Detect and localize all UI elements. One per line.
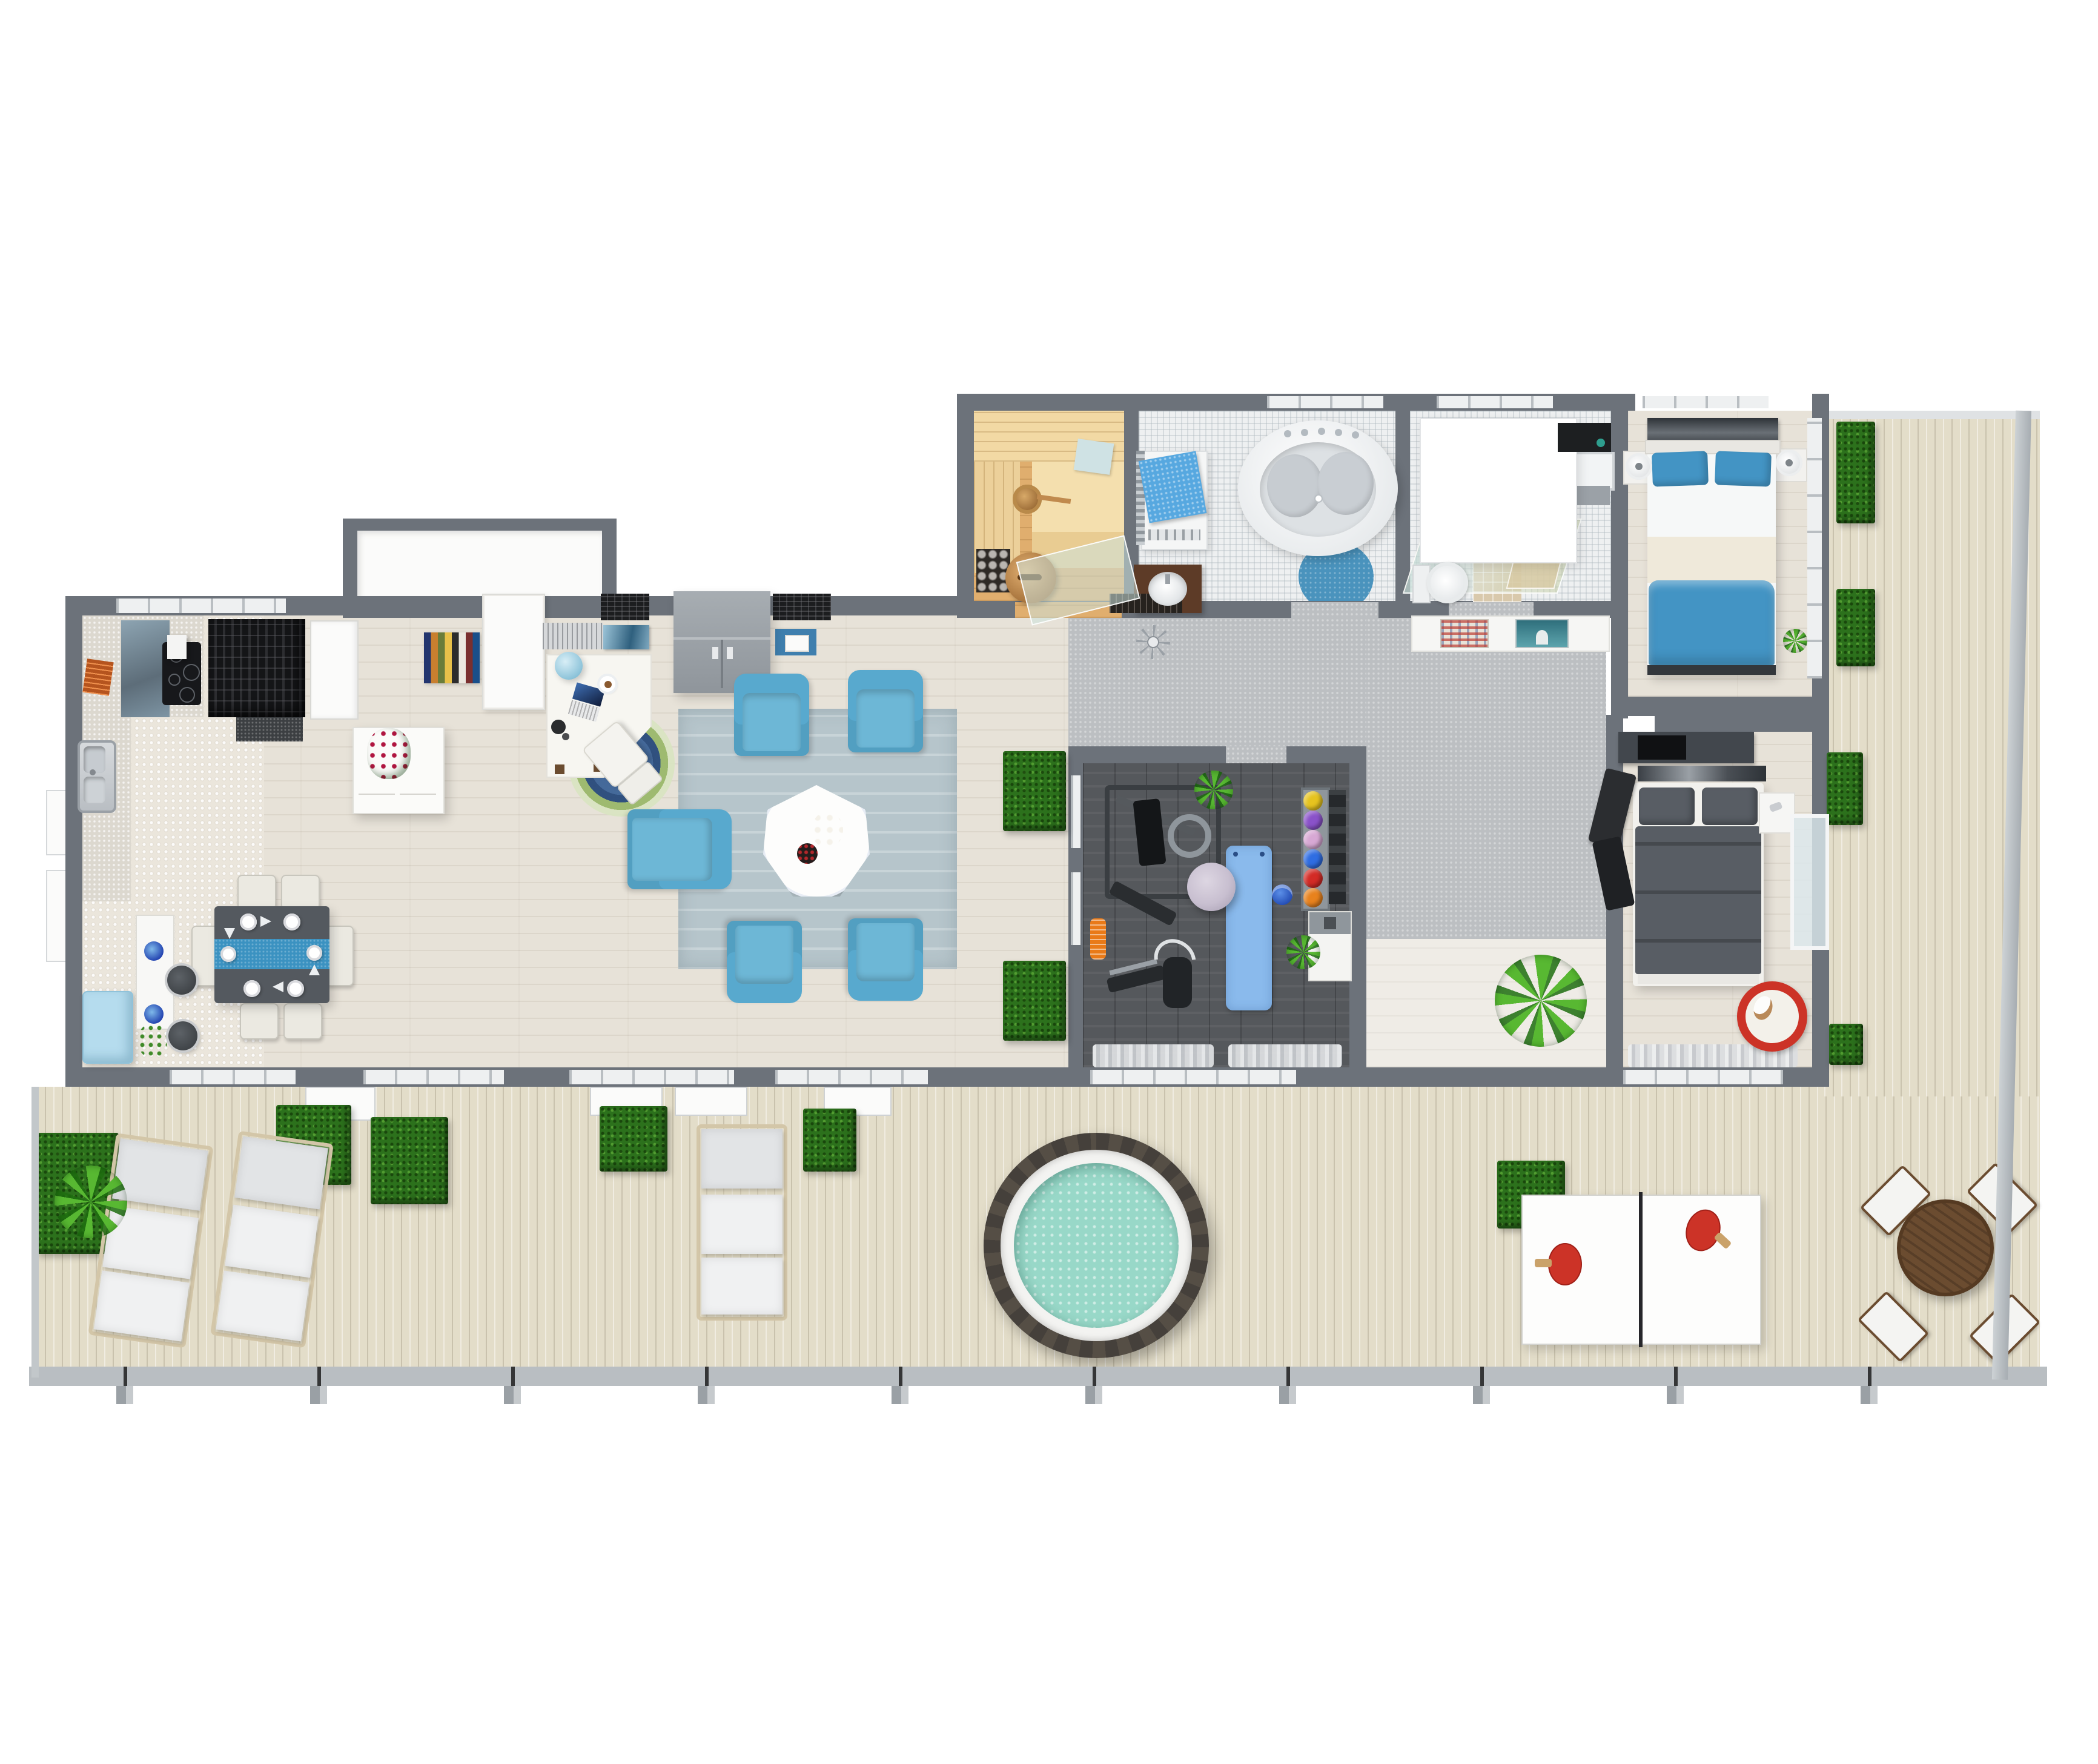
dog-bed xyxy=(1737,981,1807,1052)
hedge-cube xyxy=(803,1109,856,1172)
south-window xyxy=(170,1070,296,1084)
kitchen-sink xyxy=(78,740,116,813)
ping-pong-table xyxy=(1521,1195,1761,1345)
retro-fridge xyxy=(82,991,133,1064)
fern-plant xyxy=(55,1165,127,1238)
living-gym-window xyxy=(1071,872,1080,945)
medicine-ball xyxy=(1303,888,1323,907)
terrace-round-table xyxy=(1897,1199,1994,1296)
balcony-top-edge xyxy=(1824,411,2040,419)
armchair xyxy=(848,670,923,752)
armchair xyxy=(627,809,732,889)
hedge-cube xyxy=(1827,752,1863,825)
orchid-centerpiece xyxy=(812,812,843,848)
napkin xyxy=(224,928,235,939)
hedge-cube xyxy=(1829,1024,1863,1065)
blanket-cream xyxy=(1647,537,1776,583)
hot-tub xyxy=(984,1133,1209,1358)
gym-north-wall xyxy=(1078,746,1364,763)
integrated-fridge-door xyxy=(310,620,359,720)
bedside-lamp xyxy=(1626,453,1652,480)
brick-wall-panel xyxy=(601,594,649,620)
sauna-towel xyxy=(1074,439,1114,475)
dining-chair xyxy=(281,875,320,910)
lounge-chair-dark xyxy=(1594,771,1633,911)
flower-vase xyxy=(138,1024,167,1058)
pillow xyxy=(1702,787,1758,825)
armchair xyxy=(848,918,923,1001)
ping-pong-paddle xyxy=(1549,1244,1581,1284)
dining-table xyxy=(214,906,329,1003)
closet-bump-interior xyxy=(357,531,602,598)
blue-bowl xyxy=(144,941,164,961)
island-plant xyxy=(367,728,411,779)
art-print-tree xyxy=(1441,620,1487,647)
exercise-ball xyxy=(1187,863,1236,911)
hedge-cube xyxy=(371,1117,448,1204)
sun-lounger xyxy=(697,1124,787,1321)
skylight-panel xyxy=(1420,418,1577,563)
aquarium-picture xyxy=(603,625,649,649)
railing-posts xyxy=(29,1386,2047,1404)
ping-pong-net-line xyxy=(1639,1192,1643,1347)
round-tray xyxy=(797,843,818,864)
open-door-leaf xyxy=(675,1087,747,1116)
dining-chair xyxy=(237,875,276,910)
plate xyxy=(283,913,300,930)
tub-headrest xyxy=(1318,452,1374,515)
south-window xyxy=(1623,1070,1783,1084)
hallway-carpet-leg xyxy=(1366,618,1606,939)
brick-wall-panel xyxy=(773,594,831,620)
bedroom2-north-wall xyxy=(1655,715,1829,732)
medicine-ball xyxy=(1303,869,1323,888)
armchair xyxy=(727,921,802,1003)
south-wall xyxy=(65,1067,1829,1087)
pillow xyxy=(1715,451,1772,486)
plate xyxy=(287,980,304,997)
vessel-sink xyxy=(1148,572,1187,606)
north-window xyxy=(116,598,286,613)
blue-towel xyxy=(1139,451,1207,523)
hedge-cube xyxy=(1003,961,1066,1041)
hallway-carpet xyxy=(1068,618,1412,746)
bedroom2-artwork xyxy=(1638,766,1766,781)
bar-stool xyxy=(168,1021,197,1050)
utensil-mat xyxy=(82,658,113,696)
hedge-cube xyxy=(600,1106,667,1172)
south-window xyxy=(1090,1070,1296,1084)
hall-sideboard xyxy=(1411,615,1610,652)
hedge-cube xyxy=(1836,589,1875,666)
west-window-sill xyxy=(46,790,68,855)
sauna-west-wall xyxy=(957,394,974,618)
hall-closet xyxy=(482,594,545,710)
south-window xyxy=(569,1070,734,1084)
bedroom2-bed xyxy=(1633,783,1764,986)
hedge-cube xyxy=(1003,751,1066,831)
bar-stool xyxy=(167,966,196,995)
bedroom1-east-window xyxy=(1807,418,1822,678)
bedroom2-nightstand xyxy=(1759,792,1795,834)
dining-chair xyxy=(240,1003,279,1039)
north-window xyxy=(1437,396,1553,408)
bedroom1-plant xyxy=(1783,629,1807,653)
west-wall xyxy=(65,596,82,1087)
medicine-ball xyxy=(1303,811,1323,830)
extractor-hood xyxy=(167,635,187,659)
south-window xyxy=(363,1070,504,1084)
bathroom-door-gap xyxy=(1291,602,1378,618)
north-window xyxy=(1643,396,1769,408)
duvet-gray xyxy=(1635,826,1761,974)
hot-tub-water xyxy=(1014,1163,1179,1328)
shower-cabin-frame xyxy=(1558,423,1611,452)
blue-bowl xyxy=(144,1004,164,1024)
coffee-cup xyxy=(600,676,615,692)
dog xyxy=(1751,993,1776,1022)
bed-frame-foot xyxy=(1647,665,1776,675)
living-gym-window xyxy=(1071,775,1080,848)
pendant-globe-lamp xyxy=(555,652,583,680)
gym-east-wall xyxy=(1349,746,1366,1067)
ping-pong-paddle xyxy=(1682,1207,1724,1255)
bedroom2-media-cabinet xyxy=(1618,732,1754,763)
tub-jet-controls xyxy=(1284,430,1291,437)
kettlebell xyxy=(1272,884,1292,905)
hedge-cube xyxy=(1836,422,1875,523)
art-print-city xyxy=(1517,620,1567,647)
bedroom1-bed xyxy=(1647,445,1776,675)
gym-plant xyxy=(1286,935,1320,969)
bedroom-block-west-wall xyxy=(1611,394,1628,718)
sauna-heater-stones xyxy=(976,549,1010,592)
napkin xyxy=(260,916,271,927)
elliptical-trainer xyxy=(1151,940,1202,1015)
south-window xyxy=(775,1070,928,1084)
pillow xyxy=(1639,787,1695,825)
louvered-shelf xyxy=(543,623,603,649)
west-window-sill xyxy=(46,870,68,962)
yoga-mat xyxy=(1226,846,1272,1010)
gym-plant xyxy=(1194,771,1233,809)
gym-curtains xyxy=(1228,1044,1342,1067)
plate xyxy=(220,946,236,962)
ceiling-fan-icon xyxy=(1136,625,1170,659)
glass-railing-bottom xyxy=(29,1367,2047,1386)
foam-roller xyxy=(1090,918,1106,960)
bedroom1-south-wall xyxy=(1611,697,1829,716)
pillow xyxy=(1652,451,1709,486)
toilet xyxy=(1412,560,1471,606)
gym-curtains xyxy=(1093,1044,1214,1067)
entry-doormat xyxy=(775,629,816,655)
napkin xyxy=(273,981,283,992)
tub-headrest xyxy=(1267,454,1323,517)
dining-chair xyxy=(283,1003,322,1039)
jacuzzi-tub xyxy=(1238,420,1398,556)
north-window xyxy=(1267,396,1383,408)
striped-runner-rug xyxy=(424,632,480,683)
gym-door-gap xyxy=(1226,746,1286,763)
plate xyxy=(306,945,322,961)
bedside-lamp xyxy=(1776,449,1802,476)
glass-railing-left xyxy=(31,1087,39,1378)
medicine-ball xyxy=(1303,791,1323,811)
dumbbell-column xyxy=(1329,790,1346,904)
medicine-ball xyxy=(1303,830,1323,849)
bedroom2-balcony-door xyxy=(1790,814,1829,950)
armchair xyxy=(734,674,809,756)
medicine-ball xyxy=(1303,849,1323,869)
palm-plant xyxy=(1495,955,1587,1047)
pantry-floor xyxy=(236,717,303,741)
duvet-blue xyxy=(1649,580,1775,665)
plate xyxy=(240,913,257,930)
plate xyxy=(243,980,260,997)
desk-lamp xyxy=(551,720,566,734)
pantry-cabinet-black xyxy=(208,619,305,717)
floor-plan xyxy=(0,0,2098,1764)
